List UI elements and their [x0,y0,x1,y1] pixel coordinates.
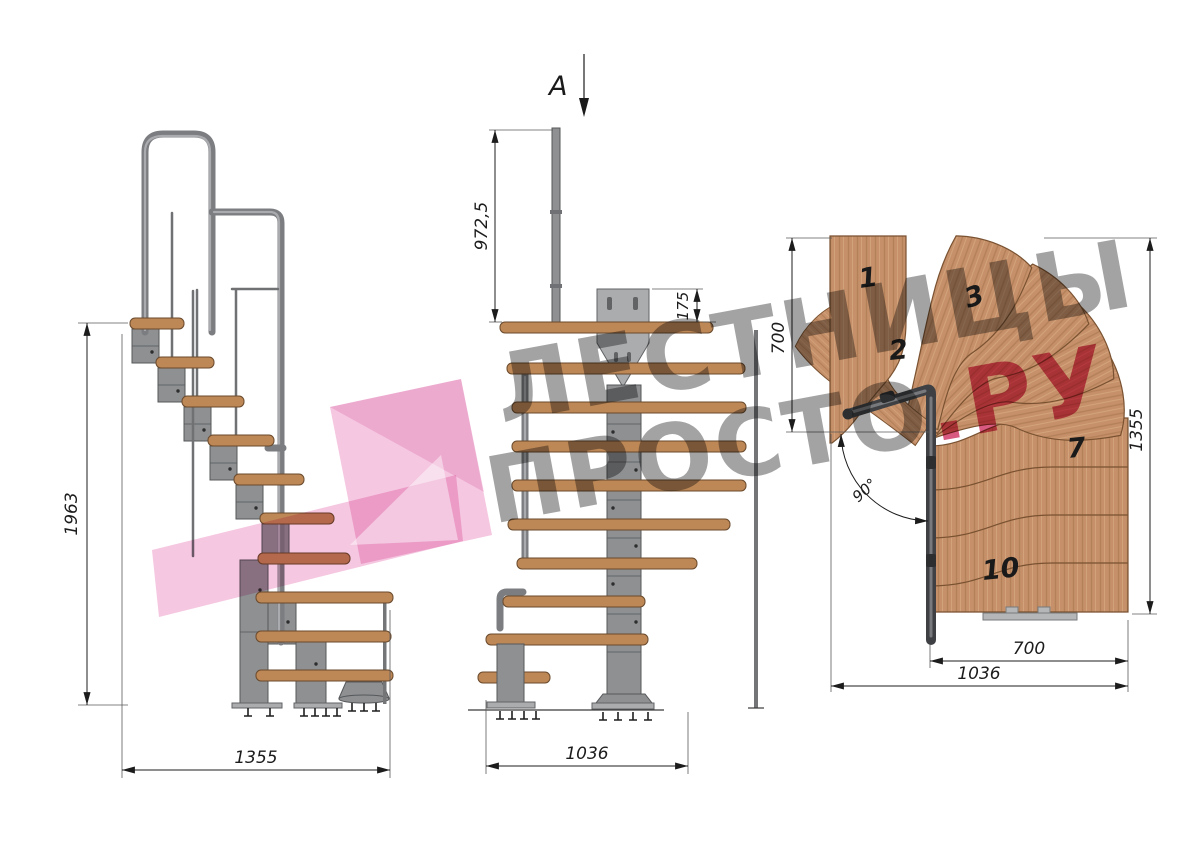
tread-number-7: 7 [1065,432,1087,465]
front-central-column [607,385,641,703]
plan-height-dimension: 1355 [1127,408,1147,451]
front-elevation-view: A [468,54,764,774]
plan-inner-width-dimension: 700 [1013,639,1045,659]
plan-angle-dimension: 90° [849,475,881,506]
section-mark-a: A [547,54,589,117]
tread-number-2: 2 [887,334,909,367]
drawing-canvas: 1963 1355 A [0,0,1200,849]
staircase-technical-drawing: 1963 1355 A [0,0,1200,849]
plan-outer-width-dimension: 1036 [957,664,1000,684]
section-mark-label: A [547,71,567,102]
side-height-dimension: 1963 [62,492,82,535]
front-width-dimension: 1036 [565,744,608,764]
side-width-dimension: 1355 [234,748,277,768]
plan-depth-dimension: 700 [769,322,789,354]
section-arrow-icon [579,98,589,117]
front-post-height-dimension: 972,5 [472,202,492,251]
front-end-post [754,330,758,708]
front-rail-post [552,128,560,324]
front-bracket-height-dimension: 175 [674,292,692,321]
side-end-post [383,592,387,704]
plan-view: 1 2 3 7 10 700 1355 90° 700 1036 [769,229,1157,692]
tread-number-10: 10 [980,552,1021,587]
